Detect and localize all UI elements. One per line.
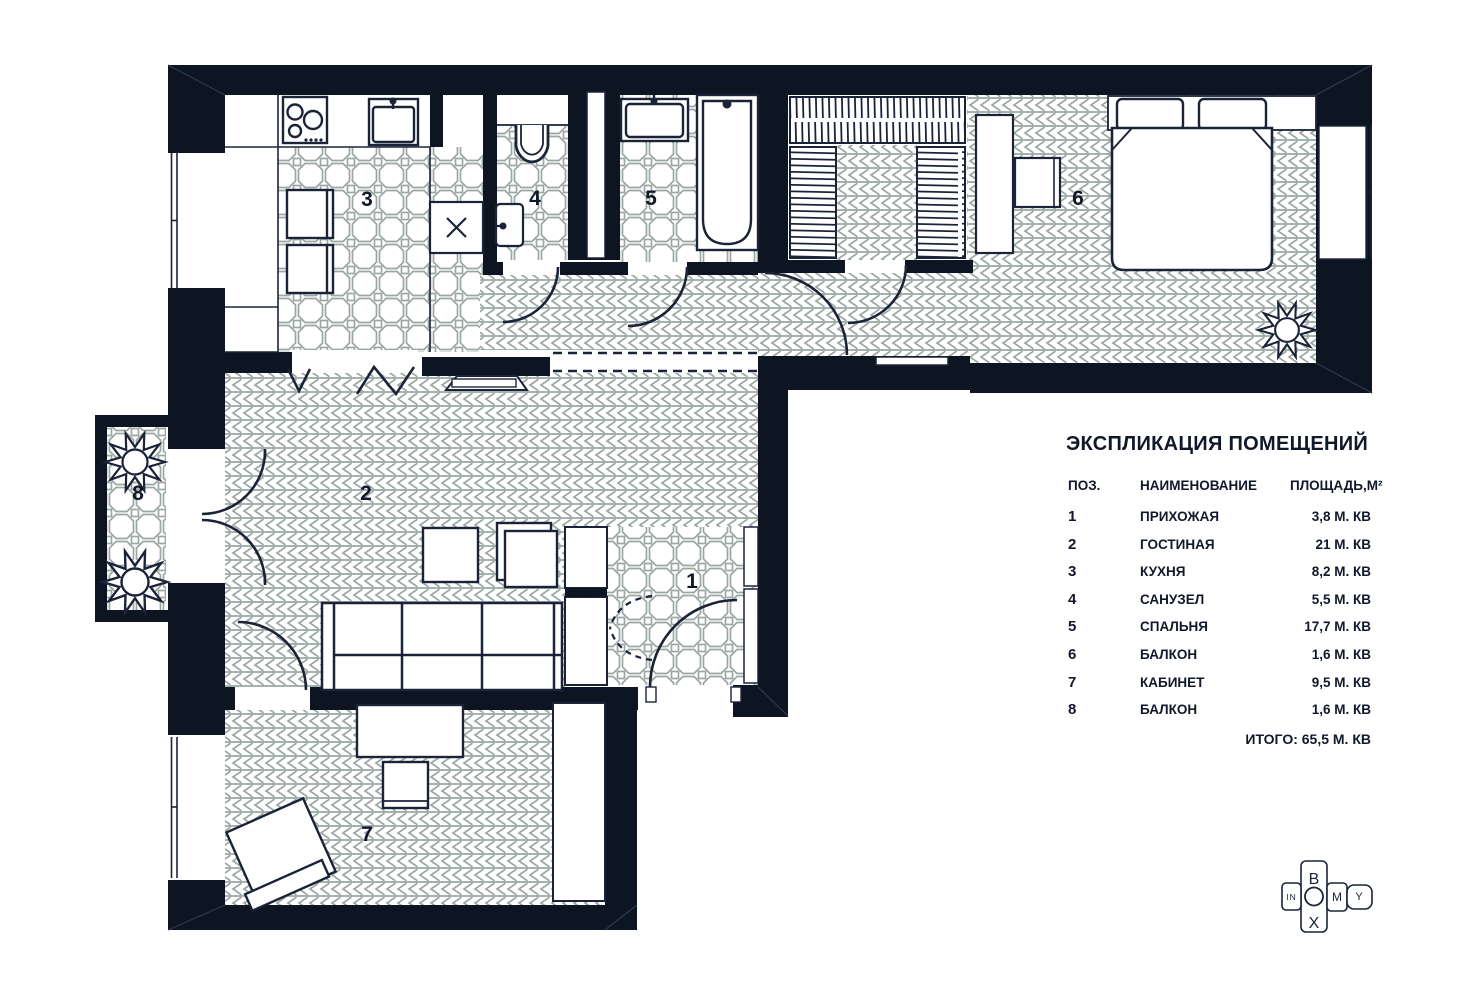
corridor-east-floor bbox=[758, 273, 970, 358]
wall-study-right bbox=[605, 687, 637, 930]
row-area: 1,6 М. КВ bbox=[1290, 641, 1378, 669]
table-row: 7 КАБИНЕТ 9,5 М. КВ bbox=[1056, 669, 1378, 697]
desk bbox=[357, 705, 463, 757]
room-label-balcony-left: 8 bbox=[132, 482, 144, 505]
wall-hallway-right bbox=[758, 390, 788, 717]
col-header-pos: ПОЗ. bbox=[1056, 478, 1140, 493]
row-pos: 6 bbox=[1056, 641, 1140, 669]
table-row: 3 КУХНЯ 8,2 М. КВ bbox=[1056, 558, 1378, 586]
explication-title: ЭКСПЛИКАЦИЯ ПОМЕЩЕНИЙ bbox=[1056, 433, 1378, 456]
row-area: 9,5 М. КВ bbox=[1290, 669, 1378, 697]
row-name: ПРИХОЖАЯ bbox=[1140, 503, 1290, 531]
row-name: КУХНЯ bbox=[1140, 558, 1290, 586]
logo-word-in: IN bbox=[1286, 892, 1297, 902]
room-label-hallway: 1 bbox=[686, 570, 698, 593]
balcony-right-opening bbox=[1319, 126, 1366, 259]
tv-shelf bbox=[452, 379, 516, 387]
stove bbox=[283, 97, 327, 143]
room-label-balcony-right: 6 bbox=[1072, 187, 1084, 210]
row-area: 17,7 М. КВ bbox=[1290, 613, 1378, 641]
room-label-study: 7 bbox=[361, 823, 373, 846]
pillow-left bbox=[1117, 99, 1183, 130]
bathroom-sink bbox=[621, 95, 688, 141]
row-name: ГОСТИНАЯ bbox=[1140, 531, 1290, 559]
explication-header: ПОЗ. НАИМЕНОВАНИЕ ПЛОЩАДЬ,М² bbox=[1056, 478, 1378, 493]
balcony-left-frame-side bbox=[95, 415, 107, 622]
table-row: 4 САНУЗЕЛ 5,5 М. КВ bbox=[1056, 586, 1378, 614]
row-name: БАЛКОН bbox=[1140, 696, 1290, 724]
bed bbox=[1112, 128, 1272, 270]
floorplan-page: 1 2 3 4 5 6 7 8 B X IN M Y ЭКСПЛИКАЦИЯ П… bbox=[0, 0, 1470, 1000]
balcony-left-frame-bottom bbox=[95, 610, 178, 622]
room-label-bathroom: 5 bbox=[645, 187, 657, 210]
entry-jamb-right bbox=[731, 687, 741, 702]
wardrobe-rack-left bbox=[790, 147, 836, 258]
row-pos: 4 bbox=[1056, 586, 1140, 614]
row-area: 3,8 М. КВ bbox=[1290, 503, 1378, 531]
study-closet bbox=[553, 703, 605, 901]
room-label-wc: 4 bbox=[529, 187, 541, 210]
wall-slot bbox=[876, 357, 948, 365]
pillow-right bbox=[1199, 99, 1266, 130]
wall-kitchen-wc bbox=[483, 65, 497, 275]
hallway-floor bbox=[607, 527, 758, 685]
living-closet bbox=[565, 527, 607, 685]
row-area: 8,2 М. КВ bbox=[1290, 558, 1378, 586]
wardrobe-shelf bbox=[790, 97, 965, 143]
row-name: БАЛКОН bbox=[1140, 641, 1290, 669]
bedroom-cabinet bbox=[976, 115, 1013, 253]
wardrobe-floor bbox=[836, 145, 917, 260]
explication-panel: ЭКСПЛИКАЦИЯ ПОМЕЩЕНИЙ ПОЗ. НАИМЕНОВАНИЕ … bbox=[1056, 433, 1378, 747]
logo-letter-m: M bbox=[1332, 890, 1342, 904]
explication-total: ИТОГО: 65,5 М. КВ bbox=[1056, 731, 1378, 747]
row-name: КАБИНЕТ bbox=[1140, 669, 1290, 697]
brand-logo: B X IN M Y bbox=[1282, 861, 1372, 932]
room-label-living: 2 bbox=[360, 482, 372, 505]
col-header-name: НАИМЕНОВАНИЕ bbox=[1140, 478, 1290, 493]
table-row: 6 БАЛКОН 1,6 М. КВ bbox=[1056, 641, 1378, 669]
col-header-area: ПЛОЩАДЬ,М² bbox=[1290, 478, 1390, 493]
table-row: 1 ПРИХОЖАЯ 3,8 М. КВ bbox=[1056, 503, 1378, 531]
table-row: 2 ГОСТИНАЯ 21 М. КВ bbox=[1056, 531, 1378, 559]
row-pos: 5 bbox=[1056, 613, 1140, 641]
balcony-door-opening bbox=[168, 449, 225, 583]
kitchen-sink bbox=[369, 98, 418, 146]
row-area: 21 М. КВ bbox=[1290, 531, 1378, 559]
toilet bbox=[516, 125, 548, 162]
room-label-kitchen: 3 bbox=[361, 188, 373, 211]
tv bbox=[422, 357, 550, 376]
wall-bottom bbox=[168, 905, 637, 930]
hall-niche-2 bbox=[744, 589, 758, 683]
wardrobe-rack-right bbox=[917, 147, 965, 258]
study-door-opening bbox=[235, 687, 310, 710]
shaft-inset bbox=[587, 92, 605, 258]
bathtub bbox=[697, 95, 758, 250]
table-row: 8 БАЛКОН 1,6 М. КВ bbox=[1056, 696, 1378, 724]
row-pos: 7 bbox=[1056, 669, 1140, 697]
kitchen-appliance-box bbox=[430, 202, 483, 253]
wall-bath-right bbox=[758, 65, 788, 273]
table-row: 5 СПАЛЬНЯ 17,7 М. КВ bbox=[1056, 613, 1378, 641]
corridor-west-floor bbox=[480, 275, 758, 352]
wc-sink bbox=[496, 204, 523, 246]
balcony-left-frame-top bbox=[95, 415, 178, 427]
logo-letter-o-circle bbox=[1305, 888, 1323, 906]
row-pos: 2 bbox=[1056, 531, 1140, 559]
row-name: САНУЗЕЛ bbox=[1140, 586, 1290, 614]
hall-niche-1 bbox=[744, 527, 758, 586]
row-area: 1,6 М. КВ bbox=[1290, 696, 1378, 724]
wall-kitchen-stub bbox=[430, 65, 443, 147]
row-pos: 1 bbox=[1056, 503, 1140, 531]
entry-jamb-left bbox=[646, 687, 656, 702]
wall-kitchen-south bbox=[225, 352, 292, 373]
logo-letter-x: X bbox=[1309, 915, 1320, 932]
wall-bedroom-south bbox=[970, 363, 1372, 393]
coffee-table bbox=[423, 528, 478, 582]
row-pos: 3 bbox=[1056, 558, 1140, 586]
row-area: 5,5 М. КВ bbox=[1290, 586, 1378, 614]
logo-letter-y: Y bbox=[1355, 891, 1363, 903]
armchair-square-2 bbox=[505, 531, 557, 587]
explication-rows: 1 ПРИХОЖАЯ 3,8 М. КВ 2 ГОСТИНАЯ 21 М. КВ… bbox=[1056, 503, 1378, 724]
row-name: СПАЛЬНЯ bbox=[1140, 613, 1290, 641]
sofa bbox=[322, 603, 562, 690]
row-pos: 8 bbox=[1056, 696, 1140, 724]
logo-letter-b: B bbox=[1309, 871, 1320, 888]
